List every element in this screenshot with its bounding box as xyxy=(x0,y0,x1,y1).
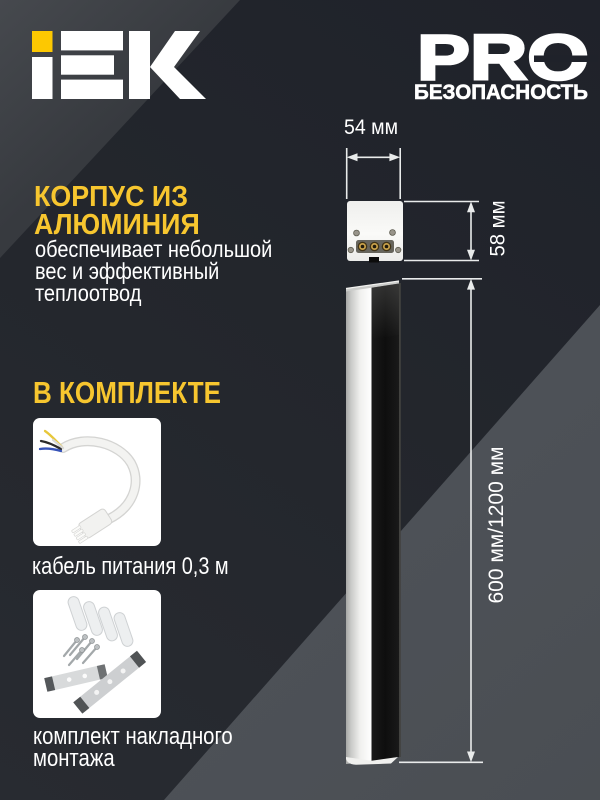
svg-text:58 мм: 58 мм xyxy=(487,201,510,257)
svg-text:600 мм/1200 мм: 600 мм/1200 мм xyxy=(485,447,508,604)
svg-text:54 мм: 54 мм xyxy=(344,116,398,139)
